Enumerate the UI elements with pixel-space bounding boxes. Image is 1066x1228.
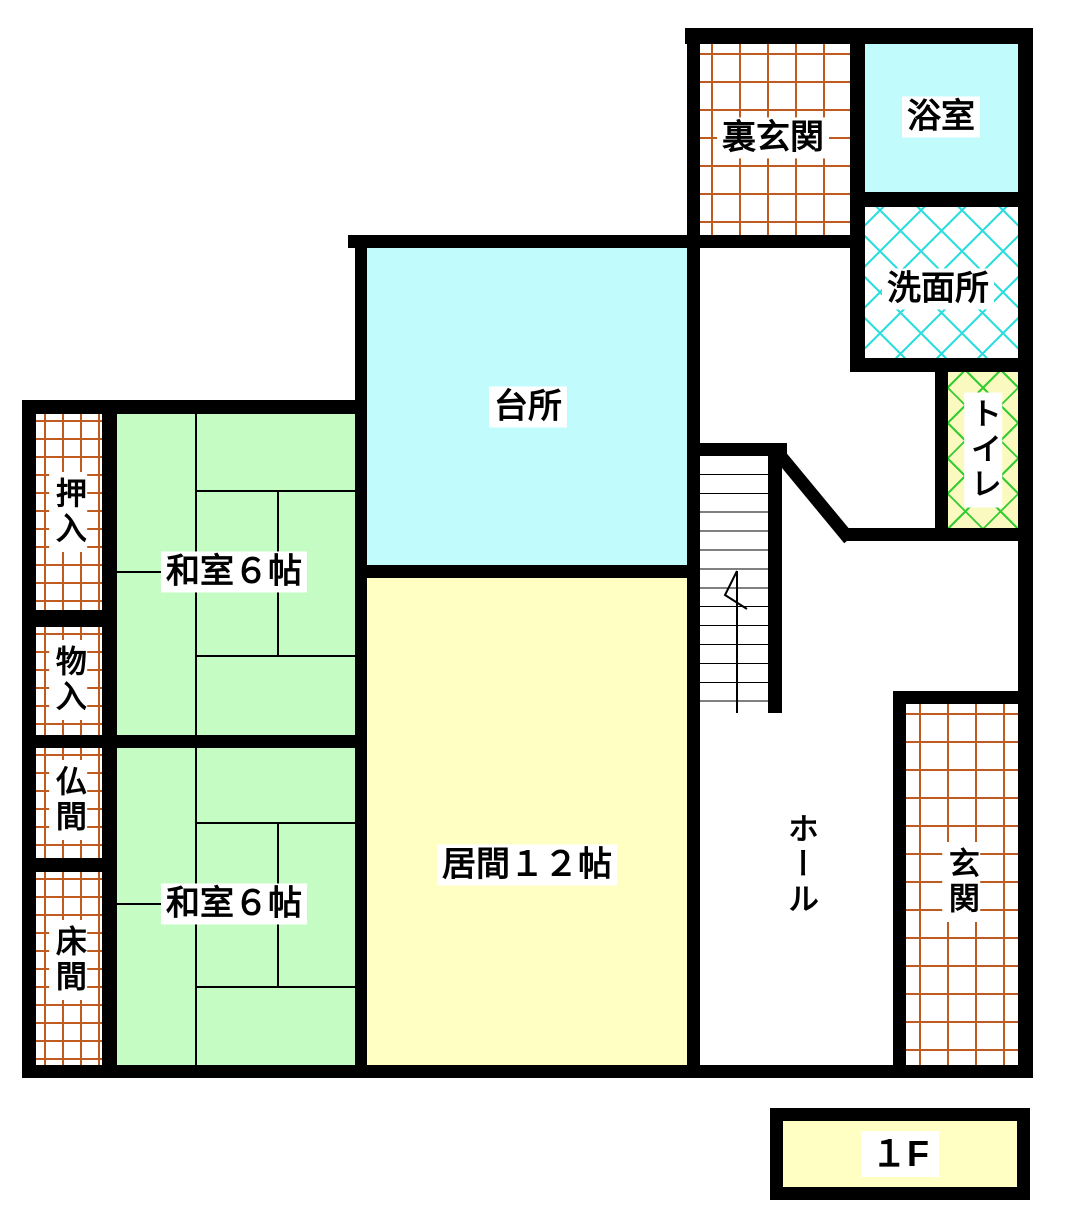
wall-segment xyxy=(22,735,367,748)
wall-segment xyxy=(893,691,1033,704)
wall-segment xyxy=(355,565,700,578)
wall-segment xyxy=(687,28,700,1078)
entrance-label: 玄関 xyxy=(942,842,980,922)
wall-segment xyxy=(22,858,117,872)
wall-segment xyxy=(935,358,948,541)
japanese-room-1-label: 和室６帖 xyxy=(161,551,307,592)
floor-badge: １F xyxy=(770,1108,1030,1200)
tatami-line xyxy=(195,655,355,657)
wall-segment xyxy=(1018,28,1033,1078)
hall-label: ホール xyxy=(781,808,819,923)
wall-segment xyxy=(355,235,367,1078)
bathroom-label: 浴室 xyxy=(902,96,980,137)
toilet-label: トイレ xyxy=(964,393,1002,508)
tatami-line xyxy=(195,490,355,492)
washroom-label: 洗面所 xyxy=(882,268,994,309)
tatami-line xyxy=(195,986,355,988)
kitchen-label: 台所 xyxy=(489,386,567,427)
wall-segment xyxy=(850,192,1033,207)
room-living xyxy=(367,578,687,1065)
wall-segment xyxy=(893,691,906,1078)
floor-badge-label: １F xyxy=(861,1131,939,1176)
japanese-room-2-label: 和室６帖 xyxy=(161,883,307,924)
back-entrance-label: 裏玄関 xyxy=(717,117,829,158)
storage-label: 物入 xyxy=(49,640,87,720)
stairs-direction-arrow xyxy=(715,560,759,620)
wall-segment xyxy=(845,528,1033,541)
wall-segment xyxy=(22,1065,1033,1078)
closet-label: 押入 xyxy=(49,472,87,552)
floor-plan: 裏玄関 浴室 洗面所 トイレ 台所 和室６帖 和室６帖 居間１２帖 ホール 玄関… xyxy=(0,0,1066,1228)
wall-segment xyxy=(768,443,782,713)
living-room-label: 居間１２帖 xyxy=(437,844,617,885)
wall-segment xyxy=(348,235,865,248)
wall-segment xyxy=(22,400,367,414)
tatami-line xyxy=(195,822,355,824)
wall-segment xyxy=(22,610,117,627)
alcove-label: 床間 xyxy=(49,920,87,1000)
altar-room-label: 仏間 xyxy=(49,760,87,840)
